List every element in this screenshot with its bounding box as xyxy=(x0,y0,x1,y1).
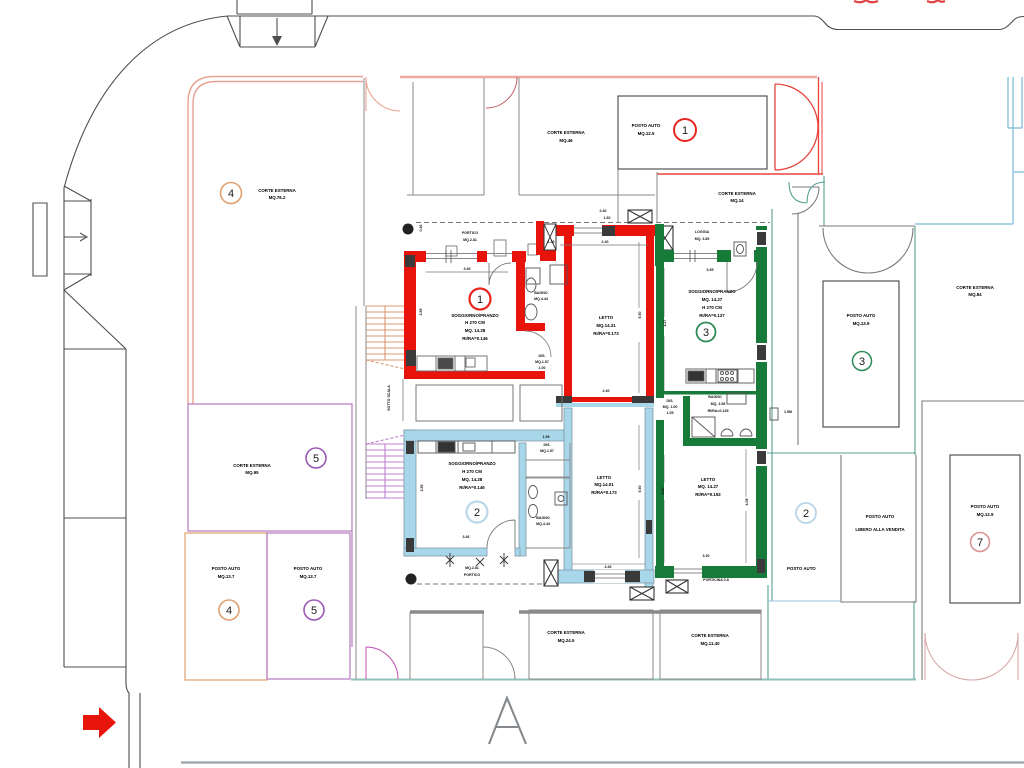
svg-text:LIBERO ALLA VENDITA: LIBERO ALLA VENDITA xyxy=(855,527,905,532)
svg-text:MQ.13.9: MQ.13.9 xyxy=(853,321,870,326)
svg-text:DIS.: DIS. xyxy=(544,443,551,447)
svg-text:MQ.14.31: MQ.14.31 xyxy=(596,323,616,328)
svg-text:4: 4 xyxy=(228,188,234,200)
svg-text:4.08: 4.08 xyxy=(745,499,749,506)
svg-text:5.50: 5.50 xyxy=(638,312,642,319)
svg-text:MQ.46: MQ.46 xyxy=(559,138,573,143)
svg-text:CORTE ESTERNA: CORTE ESTERNA xyxy=(547,130,585,135)
svg-text:MQ.13.7: MQ.13.7 xyxy=(300,574,317,579)
svg-text:SOTTO SCALA: SOTTO SCALA xyxy=(387,385,391,411)
svg-text:4.27: 4.27 xyxy=(663,320,667,327)
svg-text:3: 3 xyxy=(859,356,865,368)
svg-text:POSTO AUTO: POSTO AUTO xyxy=(971,504,1000,509)
svg-text:MQ.12.5: MQ.12.5 xyxy=(638,131,655,136)
svg-text:MQ. 3.89: MQ. 3.89 xyxy=(695,237,710,241)
svg-text:MQ. 14.27: MQ. 14.27 xyxy=(702,297,723,302)
svg-text:1.60: 1.60 xyxy=(604,216,611,220)
svg-text:3.95: 3.95 xyxy=(707,268,714,272)
svg-text:1.00: 1.00 xyxy=(539,366,546,370)
svg-text:5: 5 xyxy=(313,453,319,465)
svg-text:0.46: 0.46 xyxy=(419,225,423,232)
svg-text:POSTO AUTO: POSTO AUTO xyxy=(632,123,661,128)
svg-text:3: 3 xyxy=(703,327,709,339)
svg-text:1.36: 1.36 xyxy=(548,240,555,244)
svg-text:H 270 CM: H 270 CM xyxy=(702,305,722,310)
svg-text:DIS.: DIS. xyxy=(667,399,674,403)
svg-text:CORTE ESTERNA: CORTE ESTERNA xyxy=(691,633,729,638)
svg-text:POSTO AUTO: POSTO AUTO xyxy=(866,514,895,519)
svg-text:1.05: 1.05 xyxy=(667,411,674,415)
svg-text:RI/RA=0.146: RI/RA=0.146 xyxy=(459,485,485,490)
svg-text:MQ.13.7: MQ.13.7 xyxy=(218,574,235,579)
svg-text:1: 1 xyxy=(682,125,688,137)
svg-text:MQ.2.81: MQ.2.81 xyxy=(465,566,479,570)
svg-text:CORTE ESTERNA: CORTE ESTERNA xyxy=(718,191,756,196)
svg-text:MQ.76.2: MQ.76.2 xyxy=(269,195,286,200)
svg-text:POSTO AUTO: POSTO AUTO xyxy=(212,566,241,571)
svg-text:MQ.12.9: MQ.12.9 xyxy=(977,512,994,517)
svg-text:PORTICINA 0.8: PORTICINA 0.8 xyxy=(703,578,729,582)
svg-text:2: 2 xyxy=(474,507,480,519)
svg-text:MQ.4.44: MQ.4.44 xyxy=(534,297,548,301)
svg-text:LETTO: LETTO xyxy=(597,475,612,480)
svg-text:LETTO: LETTO xyxy=(701,477,716,482)
svg-text:1.99: 1.99 xyxy=(543,435,550,439)
svg-text:1.5M: 1.5M xyxy=(784,410,792,414)
svg-text:MQ.1.57: MQ.1.57 xyxy=(535,360,549,364)
svg-text:LOGGIA: LOGGIA xyxy=(695,230,710,234)
svg-text:BAGNO: BAGNO xyxy=(708,395,722,399)
svg-text:MQ. 1.00: MQ. 1.00 xyxy=(663,405,678,409)
svg-text:3.30: 3.30 xyxy=(703,554,710,558)
svg-text:SOGGIORNO/PRANZO: SOGGIORNO/PRANZO xyxy=(448,461,496,466)
svg-text:2.40: 2.40 xyxy=(602,240,609,244)
svg-text:MQ.24.5: MQ.24.5 xyxy=(558,638,575,643)
svg-text:MQ.95: MQ.95 xyxy=(245,470,259,475)
svg-text:5.50: 5.50 xyxy=(638,486,642,493)
svg-text:PORTICO: PORTICO xyxy=(462,231,479,235)
svg-text:LETTO: LETTO xyxy=(599,315,614,320)
svg-text:SOGGIORNO/PRANZO: SOGGIORNO/PRANZO xyxy=(451,313,499,318)
svg-text:4: 4 xyxy=(226,605,232,617)
svg-text:MQ.2.81: MQ.2.81 xyxy=(463,238,477,242)
svg-text:PORTICO: PORTICO xyxy=(464,573,481,577)
svg-text:4.60: 4.60 xyxy=(661,488,665,495)
svg-text:5: 5 xyxy=(311,605,317,617)
svg-text:2.40: 2.40 xyxy=(600,209,607,213)
svg-text:MQ.11.40: MQ.11.40 xyxy=(700,641,720,646)
svg-text:CORTE ESTERNA: CORTE ESTERNA xyxy=(547,630,585,635)
svg-text:MQ.14.01: MQ.14.01 xyxy=(594,482,614,487)
svg-text:3.59: 3.59 xyxy=(420,485,424,492)
svg-text:POSTO AUTO: POSTO AUTO xyxy=(294,566,323,571)
svg-text:H 270 CM: H 270 CM xyxy=(465,320,485,325)
svg-text:MQ. 14.28: MQ. 14.28 xyxy=(462,477,483,482)
svg-text:CORTE ESTERNA: CORTE ESTERNA xyxy=(233,463,271,468)
svg-text:BAGNO: BAGNO xyxy=(534,291,548,295)
svg-text:POSTO AUTO: POSTO AUTO xyxy=(787,566,816,571)
svg-text:H 270 CM: H 270 CM xyxy=(462,469,482,474)
svg-text:MQ. 14.27: MQ. 14.27 xyxy=(698,484,719,489)
svg-text:7: 7 xyxy=(977,537,983,549)
svg-text:RI/RA=0.127: RI/RA=0.127 xyxy=(699,313,725,318)
svg-text:RI/RA=0.173: RI/RA=0.173 xyxy=(593,331,619,336)
svg-text:MQ. 14.28: MQ. 14.28 xyxy=(465,328,486,333)
svg-text:BAGNO: BAGNO xyxy=(536,516,550,520)
svg-text:3.59: 3.59 xyxy=(419,309,423,316)
svg-text:MQ.1.57: MQ.1.57 xyxy=(540,449,554,453)
svg-text:MQ.14: MQ.14 xyxy=(730,198,744,203)
svg-text:CORTE ESTERNA: CORTE ESTERNA xyxy=(258,188,296,193)
svg-text:RI/RA=0.146: RI/RA=0.146 xyxy=(462,336,488,341)
svg-text:3.46: 3.46 xyxy=(463,535,470,539)
svg-text:RI/RA=0.139: RI/RA=0.139 xyxy=(708,409,729,413)
svg-text:MQ. 3.58: MQ. 3.58 xyxy=(711,402,726,406)
svg-text:CORTE ESTERNA: CORTE ESTERNA xyxy=(956,285,994,290)
svg-text:SOGGIORNO/PRANZO: SOGGIORNO/PRANZO xyxy=(688,289,736,294)
svg-text:3.46: 3.46 xyxy=(464,267,471,271)
svg-text:2.40: 2.40 xyxy=(605,565,612,569)
svg-text:1: 1 xyxy=(477,294,483,306)
svg-text:MQ.84: MQ.84 xyxy=(968,292,982,297)
svg-text:RI/RA=0.192: RI/RA=0.192 xyxy=(695,492,721,497)
svg-text:MQ.4.44: MQ.4.44 xyxy=(536,522,550,526)
svg-text:DIS.: DIS. xyxy=(539,354,546,358)
svg-text:2.40: 2.40 xyxy=(603,389,610,393)
svg-text:POSTO AUTO: POSTO AUTO xyxy=(847,313,876,318)
svg-text:2: 2 xyxy=(803,508,809,520)
svg-text:RI/RA=0.173: RI/RA=0.173 xyxy=(591,490,617,495)
